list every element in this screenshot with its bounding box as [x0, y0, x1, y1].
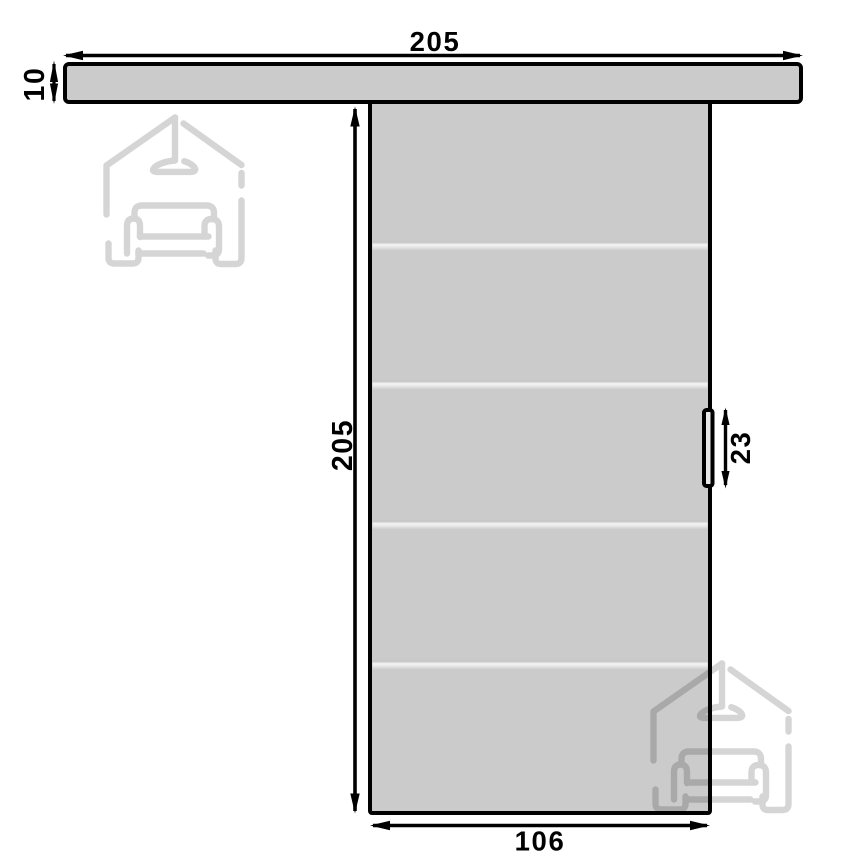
svg-text:10: 10: [19, 67, 51, 102]
svg-text:205: 205: [410, 26, 461, 57]
svg-text:205: 205: [327, 419, 359, 471]
svg-text:106: 106: [515, 826, 566, 857]
svg-text:23: 23: [725, 431, 756, 465]
